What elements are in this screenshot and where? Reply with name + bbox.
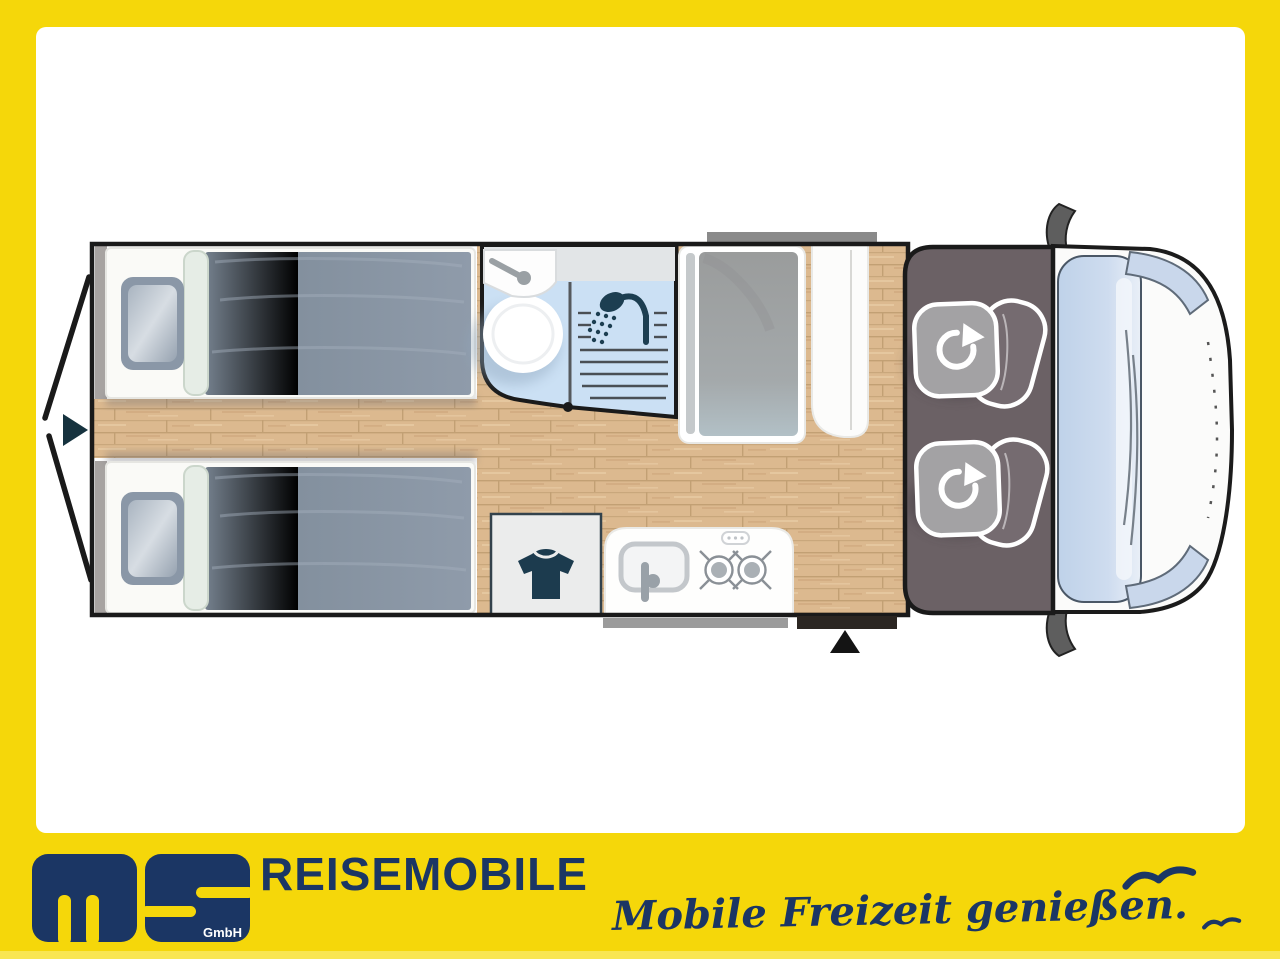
seagull-icons <box>1090 843 1280 953</box>
tall-cabinet <box>679 246 805 443</box>
bathroom <box>468 246 677 417</box>
burner-icon <box>700 551 738 589</box>
faucet-knob <box>517 271 531 285</box>
footer-edge-highlight <box>0 951 1280 959</box>
side-mirror-bottom-icon <box>1047 610 1075 656</box>
logo-sub-text: GmbH <box>203 925 242 940</box>
bed-single-top <box>106 248 475 398</box>
mattress <box>205 467 471 610</box>
brand-name: REISEMOBILE <box>260 851 588 897</box>
mattress <box>205 252 471 395</box>
entry-arrow-icon <box>830 630 860 653</box>
cab-area <box>904 247 1054 613</box>
side-door-panel <box>812 244 868 437</box>
windshield-reflection <box>1116 278 1132 580</box>
burner-icon <box>733 551 771 589</box>
toilet <box>483 295 563 373</box>
pillow-inner <box>128 285 177 362</box>
blanket-roll <box>184 251 208 395</box>
bed-single-bottom <box>106 462 475 613</box>
kitchen-block <box>605 528 793 614</box>
seagull-icon <box>1204 919 1240 928</box>
floorplan-diagram <box>0 0 1280 959</box>
rear-door-arrow-icon <box>63 414 88 446</box>
rear-doors-indicator <box>45 277 91 580</box>
cabinet-handle <box>686 253 695 434</box>
clothes-wardrobe <box>491 514 601 615</box>
ms-gmbh-logo: GmbH <box>0 833 300 959</box>
blanket-roll <box>184 466 208 610</box>
kitchen-faucet-knob <box>646 574 660 588</box>
exterior-step <box>603 618 788 628</box>
cabinet-door <box>699 252 798 436</box>
footer-banner: GmbH REISEMOBILE Mobile Freizeit genieße… <box>0 833 1280 959</box>
rear-door-line <box>49 436 91 580</box>
listing-image: GmbH REISEMOBILE Mobile Freizeit genieße… <box>0 0 1280 959</box>
seagull-icon <box>1125 869 1194 887</box>
vehicle-front <box>1053 246 1232 612</box>
side-mirror-top-icon <box>1047 204 1075 250</box>
walkway-floor <box>94 399 477 458</box>
entry-door <box>797 616 897 629</box>
rear-door-line <box>45 277 89 418</box>
door-pivot <box>563 402 573 412</box>
pillow-inner <box>128 500 177 577</box>
